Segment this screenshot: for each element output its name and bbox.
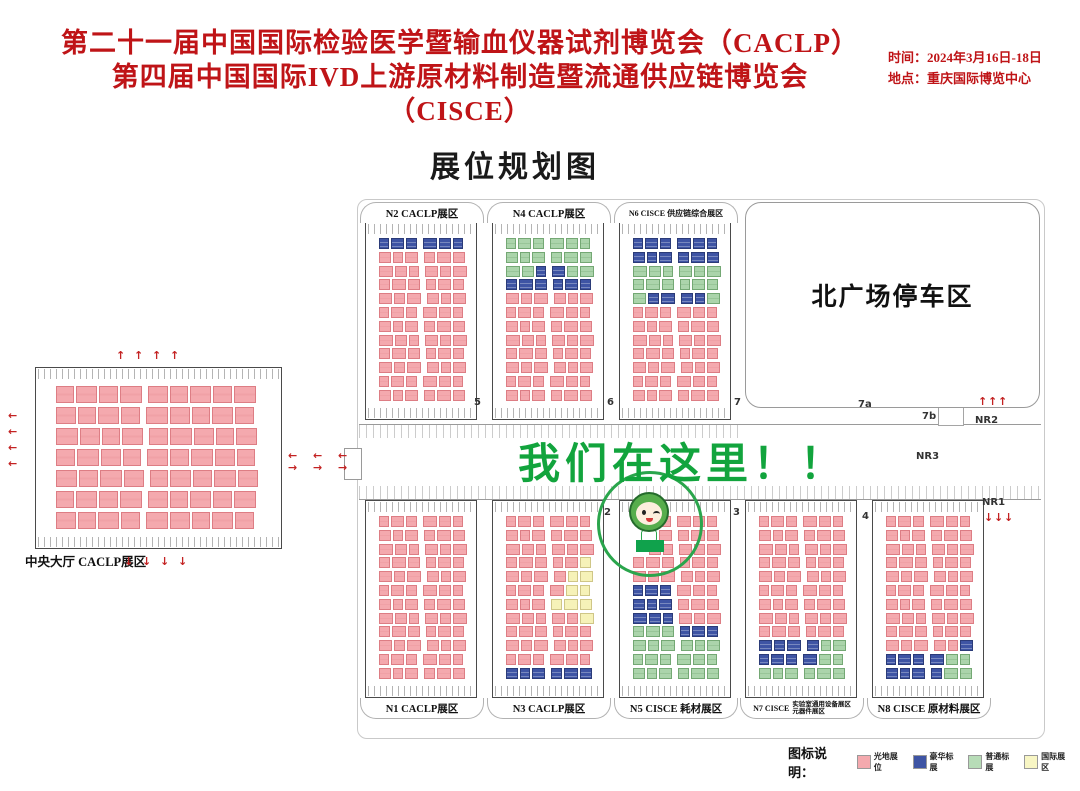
booth xyxy=(565,348,578,359)
booth xyxy=(395,544,407,555)
booth xyxy=(407,293,421,304)
corridor-label-4: 4 xyxy=(862,512,869,522)
booth xyxy=(945,626,958,637)
booth-row xyxy=(366,668,476,679)
booth xyxy=(645,307,658,318)
booth-row xyxy=(36,470,281,487)
booth xyxy=(693,238,705,249)
booth xyxy=(659,252,672,263)
booth xyxy=(379,321,391,332)
booth xyxy=(453,293,466,304)
booth xyxy=(678,252,689,263)
booth xyxy=(453,640,466,651)
left-arrow-icon: ← xyxy=(8,410,17,421)
up-arrow-icon: ↑ xyxy=(152,350,161,361)
booth xyxy=(564,252,578,263)
hall-label-N4: N4 CACLP展区 xyxy=(487,202,611,223)
booth xyxy=(554,571,566,582)
booth xyxy=(438,348,451,359)
booth xyxy=(120,491,142,508)
booth-row xyxy=(493,307,603,318)
booth xyxy=(453,362,466,373)
booth xyxy=(553,626,563,637)
booth-row xyxy=(746,530,856,541)
booth xyxy=(899,557,913,568)
hall-N3 xyxy=(492,500,604,698)
booth xyxy=(393,668,403,679)
left-arrow-icon: ← xyxy=(8,442,17,453)
booth-row xyxy=(620,307,730,318)
hall-structure xyxy=(38,537,279,547)
booth xyxy=(759,557,770,568)
booth xyxy=(580,266,594,277)
down-arrow-icon: ↓ xyxy=(984,512,993,523)
booth-row xyxy=(746,599,856,610)
booth xyxy=(423,585,437,596)
booth xyxy=(707,599,719,610)
left-arrow-icon: ← xyxy=(338,450,347,461)
booth xyxy=(807,640,819,651)
booth xyxy=(681,571,693,582)
booth xyxy=(453,307,463,318)
booth xyxy=(441,293,451,304)
booth xyxy=(633,279,644,290)
booth xyxy=(391,585,404,596)
parking-label: 北广场停车区 xyxy=(811,277,973,313)
booth xyxy=(946,585,958,596)
booth xyxy=(804,599,815,610)
booth xyxy=(819,516,831,527)
booth xyxy=(707,390,719,401)
booth xyxy=(522,613,534,624)
hall-structure xyxy=(622,224,728,234)
booth xyxy=(506,571,519,582)
booth xyxy=(567,266,578,277)
booth xyxy=(707,516,717,527)
booth xyxy=(553,279,563,290)
booth-row xyxy=(36,449,281,466)
booth xyxy=(407,640,421,651)
booth xyxy=(235,512,254,529)
booth xyxy=(439,238,451,249)
booth xyxy=(521,640,532,651)
up-arrow-icon: ↑ xyxy=(978,396,987,407)
booth xyxy=(660,238,671,249)
hall-structure xyxy=(368,502,474,512)
booth xyxy=(661,640,675,651)
booth xyxy=(379,335,393,346)
booth xyxy=(426,626,436,637)
booth xyxy=(947,613,958,624)
booth xyxy=(960,516,970,527)
booth xyxy=(438,557,451,568)
booth xyxy=(391,376,404,387)
booth xyxy=(707,530,719,541)
booth xyxy=(566,238,578,249)
booth xyxy=(394,571,405,582)
booth xyxy=(535,626,547,637)
booth xyxy=(934,571,946,582)
booth xyxy=(759,626,770,637)
booth xyxy=(645,585,658,596)
booth-row xyxy=(873,668,983,679)
booth xyxy=(677,307,691,318)
booth xyxy=(649,266,661,277)
hall-label-N1: N1 CACLP展区 xyxy=(360,698,484,719)
booth xyxy=(519,279,533,290)
booth xyxy=(213,491,232,508)
booth xyxy=(833,544,847,555)
we-are-here-text: 我们在这里！！ xyxy=(518,430,847,491)
booth xyxy=(771,654,784,665)
booth xyxy=(521,293,532,304)
booth xyxy=(886,516,896,527)
booth xyxy=(423,238,437,249)
booth xyxy=(886,654,896,665)
booth xyxy=(900,668,910,679)
booth xyxy=(150,470,168,487)
booth xyxy=(391,654,404,665)
booth-row xyxy=(493,376,603,387)
booth xyxy=(580,544,594,555)
booth xyxy=(552,613,565,624)
booth xyxy=(391,238,404,249)
hall-N4 xyxy=(492,222,604,420)
booth xyxy=(194,428,214,445)
booth xyxy=(379,640,392,651)
booth xyxy=(506,654,516,665)
booth-row xyxy=(746,571,856,582)
booth xyxy=(379,516,389,527)
booth xyxy=(580,599,592,610)
booth xyxy=(379,279,390,290)
booth xyxy=(506,362,519,373)
booth xyxy=(901,571,912,582)
booth xyxy=(532,668,545,679)
hall-structure xyxy=(875,502,981,512)
booth xyxy=(170,512,190,529)
legend-item-3: 国际展区 xyxy=(1024,751,1073,773)
booth xyxy=(379,557,390,568)
booth xyxy=(148,386,168,403)
booth xyxy=(379,544,393,555)
booth xyxy=(192,512,210,529)
booth xyxy=(804,668,815,679)
booth xyxy=(771,585,784,596)
booth xyxy=(78,407,96,424)
booth xyxy=(533,585,544,596)
booth xyxy=(930,654,944,665)
booth xyxy=(633,376,643,387)
booth xyxy=(395,335,407,346)
booth-row xyxy=(493,599,603,610)
mascot-icon xyxy=(629,492,669,532)
booth xyxy=(707,348,718,359)
booth xyxy=(453,571,466,582)
booth xyxy=(930,516,944,527)
booth xyxy=(694,613,705,624)
booth xyxy=(660,376,671,387)
booth xyxy=(567,613,578,624)
booth xyxy=(522,544,534,555)
booth xyxy=(759,640,772,651)
booth xyxy=(707,293,720,304)
corridor-label-7: 7 xyxy=(734,398,741,408)
booth xyxy=(564,321,578,332)
booth-row xyxy=(746,516,856,527)
booth xyxy=(580,585,590,596)
booth-row xyxy=(873,585,983,596)
booth-row xyxy=(366,640,476,651)
booth xyxy=(580,362,593,373)
booth-row xyxy=(366,238,476,249)
booth-row xyxy=(493,279,603,290)
booth xyxy=(633,321,645,332)
booth xyxy=(170,386,188,403)
booth xyxy=(437,390,451,401)
booth xyxy=(899,626,913,637)
booth xyxy=(409,266,419,277)
booth-row xyxy=(873,626,983,637)
booth xyxy=(580,335,594,346)
booth xyxy=(405,668,418,679)
hall-label-text: N4 CACLP展区 xyxy=(513,206,586,221)
booth xyxy=(806,626,816,637)
booth xyxy=(149,428,168,445)
booth xyxy=(551,252,562,263)
booth xyxy=(554,293,566,304)
booth xyxy=(662,626,674,637)
booth xyxy=(532,390,545,401)
booth xyxy=(440,335,451,346)
booth xyxy=(394,362,405,373)
booth xyxy=(98,407,119,424)
booth xyxy=(56,407,76,424)
booth xyxy=(394,640,405,651)
booth xyxy=(707,321,719,332)
booth xyxy=(102,428,120,445)
hall-label-text: N8 CISCE 原材料展区 xyxy=(878,701,981,716)
booth xyxy=(773,599,783,610)
booth-row xyxy=(493,293,603,304)
booth xyxy=(820,613,831,624)
booth xyxy=(677,654,691,665)
booth xyxy=(707,585,717,596)
booth-row xyxy=(493,585,603,596)
booth xyxy=(146,512,168,529)
booth xyxy=(786,654,797,665)
booth xyxy=(661,293,675,304)
booth-row xyxy=(620,293,730,304)
booth-row xyxy=(620,279,730,290)
booth xyxy=(580,626,591,637)
booth xyxy=(819,654,831,665)
hall-structure xyxy=(622,686,728,696)
booth-row xyxy=(620,626,730,637)
booth xyxy=(633,390,645,401)
booth xyxy=(535,557,547,568)
booth xyxy=(580,571,593,582)
booth xyxy=(633,252,645,263)
up-arrow-icon: ↑ xyxy=(170,350,179,361)
hall-label-text: N2 CACLP展区 xyxy=(386,206,459,221)
hall-structure xyxy=(875,686,981,696)
booth xyxy=(191,449,213,466)
up-arrow-icon: ↑ xyxy=(134,350,143,361)
booth xyxy=(633,307,643,318)
booth xyxy=(677,585,691,596)
booth xyxy=(785,668,798,679)
right-arrow-icon: → xyxy=(338,462,347,473)
booth xyxy=(771,516,784,527)
booth xyxy=(914,571,928,582)
booth xyxy=(506,668,518,679)
booth xyxy=(453,530,465,541)
booth xyxy=(580,238,590,249)
booth xyxy=(506,376,516,387)
up-arrow-icon: ↑ xyxy=(116,350,125,361)
booth xyxy=(552,335,565,346)
right-arrow-icon: → xyxy=(313,462,322,473)
hall-structure xyxy=(368,224,474,234)
booth xyxy=(960,599,972,610)
hall-structure xyxy=(748,686,854,696)
booth xyxy=(554,362,566,373)
booth-row xyxy=(366,348,476,359)
corridor-label-5: 5 xyxy=(474,398,481,408)
booth xyxy=(833,613,847,624)
booth xyxy=(568,571,578,582)
booth xyxy=(807,571,819,582)
booth xyxy=(946,516,958,527)
booth xyxy=(99,491,118,508)
booth-row xyxy=(493,544,603,555)
booth xyxy=(565,626,578,637)
booth xyxy=(423,516,437,527)
booth xyxy=(533,654,544,665)
booth xyxy=(707,307,717,318)
booth xyxy=(692,348,705,359)
booth xyxy=(775,544,787,555)
booth xyxy=(707,626,718,637)
booth xyxy=(944,599,958,610)
booth-row xyxy=(620,376,730,387)
booth xyxy=(506,266,520,277)
booth xyxy=(633,585,643,596)
booth xyxy=(437,668,451,679)
booth xyxy=(437,321,451,332)
hall-N8 xyxy=(872,500,984,698)
booth xyxy=(695,362,705,373)
booth xyxy=(534,293,548,304)
booth-row xyxy=(493,557,603,568)
corridor-label-NR1: NR1 xyxy=(982,498,1005,508)
booth xyxy=(677,376,691,387)
booth xyxy=(933,626,943,637)
legend-item-0: 光地展位 xyxy=(857,751,906,773)
booth xyxy=(707,335,721,346)
booth xyxy=(520,668,530,679)
booth xyxy=(681,640,693,651)
booth-row xyxy=(620,640,730,651)
hall-label-text: N5 CISCE 耗材展区 xyxy=(630,701,722,716)
booth xyxy=(663,335,673,346)
booth xyxy=(425,335,438,346)
booth xyxy=(648,293,659,304)
booth xyxy=(453,321,465,332)
hall-N2 xyxy=(365,222,477,420)
booth xyxy=(506,293,519,304)
booth xyxy=(550,238,564,249)
booth xyxy=(56,428,78,445)
hall-structure xyxy=(495,502,601,512)
booth xyxy=(886,668,898,679)
event-info: 时间：2024年3月16日-18日 地点：重庆国际博览中心 xyxy=(888,47,1078,89)
legend-item-1: 豪华标展 xyxy=(913,751,962,773)
booth xyxy=(551,599,562,610)
legend-item-label: 豪华标展 xyxy=(930,751,962,773)
booth-row xyxy=(493,654,603,665)
booth xyxy=(393,390,403,401)
booth xyxy=(785,599,798,610)
booth xyxy=(522,266,534,277)
booth xyxy=(680,626,690,637)
booth-row xyxy=(620,654,730,665)
booth xyxy=(520,252,530,263)
left-arrow-icon: ← xyxy=(313,450,322,461)
legend-item-label: 光地展位 xyxy=(874,751,906,773)
booth-row xyxy=(366,516,476,527)
booth-row xyxy=(620,335,730,346)
booth xyxy=(393,321,403,332)
booth xyxy=(759,516,769,527)
booth xyxy=(633,613,647,624)
booth xyxy=(565,279,578,290)
booth xyxy=(564,668,578,679)
booth xyxy=(833,654,843,665)
booth xyxy=(212,407,233,424)
booth xyxy=(214,470,236,487)
booth xyxy=(532,252,545,263)
booth xyxy=(550,516,564,527)
booth xyxy=(833,516,843,527)
booth xyxy=(679,266,692,277)
hall-structure xyxy=(368,686,474,696)
booth xyxy=(453,544,467,555)
booth xyxy=(759,530,771,541)
booth xyxy=(580,654,590,665)
nr3-corridor xyxy=(938,406,964,426)
booth-row xyxy=(746,585,856,596)
booth xyxy=(580,613,594,624)
booth xyxy=(580,557,591,568)
booth xyxy=(520,321,530,332)
booth xyxy=(423,307,437,318)
booth xyxy=(439,654,451,665)
booth-row xyxy=(366,530,476,541)
booth xyxy=(440,544,451,555)
booth xyxy=(536,544,546,555)
booth xyxy=(759,668,771,679)
booth xyxy=(426,557,436,568)
booth xyxy=(551,321,562,332)
booth xyxy=(426,279,436,290)
booth xyxy=(394,293,405,304)
booth xyxy=(788,557,800,568)
booth xyxy=(886,571,899,582)
booth xyxy=(535,279,547,290)
booth xyxy=(518,238,531,249)
